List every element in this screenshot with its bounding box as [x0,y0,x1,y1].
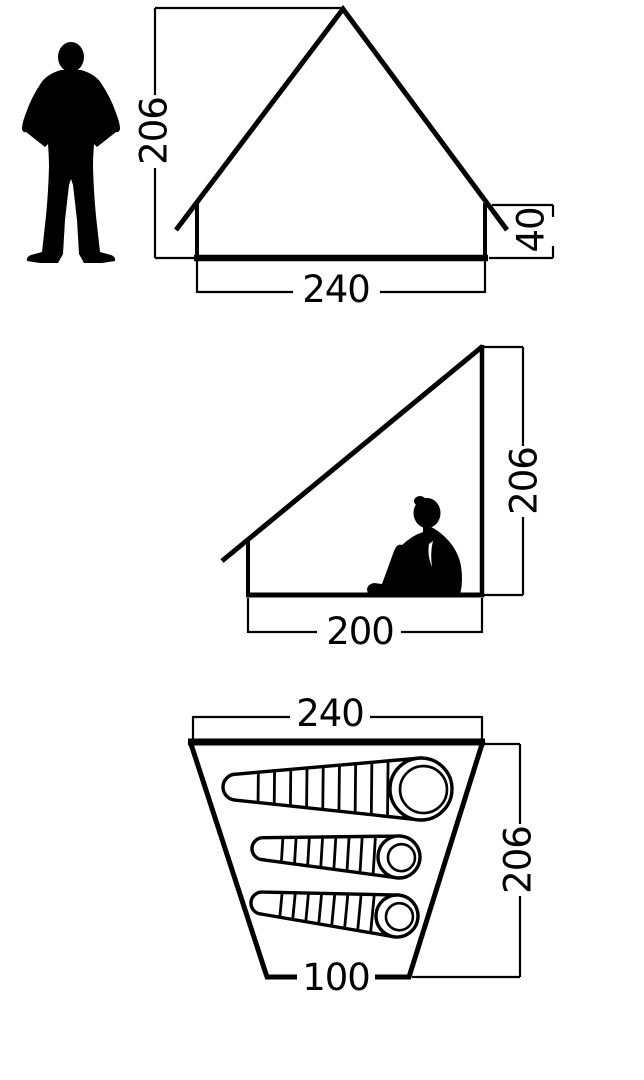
sleeping-bag-rib [281,839,282,861]
sleeping-bag-icon [223,756,453,820]
sleeping-bag-icon [249,881,420,939]
front-height-dimension: 206 [133,8,342,258]
side-depth-label: 200 [326,610,394,653]
tent-dimension-diagram: 206 240 40 [0,0,644,1080]
side-depth-dimension: 200 [248,598,482,653]
plan-depth-label: 206 [497,826,540,894]
side-roof-line [222,346,483,561]
sleeping-bag-rib [388,762,389,815]
front-view: 206 240 40 [22,8,553,311]
sleeping-bag-rib [321,838,323,866]
sleeping-bag-rib [295,839,296,863]
sleeping-bags [223,756,453,939]
person-standing-head [58,42,84,72]
person-sitting-hair [414,496,426,506]
plan-front-width-dimension: 240 [193,692,482,740]
front-sidewall-label: 40 [510,207,553,252]
person-standing-icon [22,42,120,263]
sleeping-bag-icon [251,827,422,879]
side-height-dimension: 206 [482,347,546,595]
side-view: 206 200 [222,345,546,653]
sleeping-bag-rib [371,764,372,814]
sleeping-bag-rib [334,838,336,868]
front-width-label: 240 [302,268,370,311]
diagram-svg: 206 240 40 [0,0,644,1080]
person-sitting-icon [367,496,462,595]
front-roof-outline [176,9,507,230]
plan-rear-width-label: 100 [302,956,370,999]
front-height-label: 206 [133,97,176,165]
floor-plan: 100 240 206 [188,692,540,999]
side-height-label: 206 [503,447,546,515]
plan-front-width-label: 240 [296,692,364,735]
sleeping-bag-rib [347,838,349,870]
sleeping-bag-rib [308,839,310,865]
person-standing-body [22,70,120,263]
person-sitting-body [367,524,462,595]
front-sidewall-dimension: 40 [489,205,553,258]
front-width-dimension: 240 [197,260,485,311]
